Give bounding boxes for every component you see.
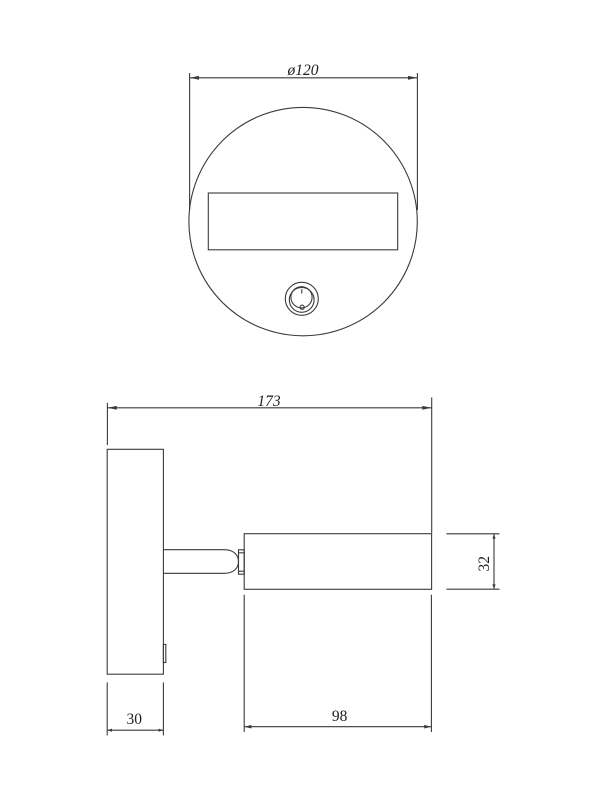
- svg-text:32: 32: [476, 556, 493, 572]
- svg-text:ø120: ø120: [287, 62, 319, 79]
- svg-text:98: 98: [332, 708, 348, 725]
- svg-text:173: 173: [257, 393, 281, 410]
- svg-text:30: 30: [127, 711, 143, 728]
